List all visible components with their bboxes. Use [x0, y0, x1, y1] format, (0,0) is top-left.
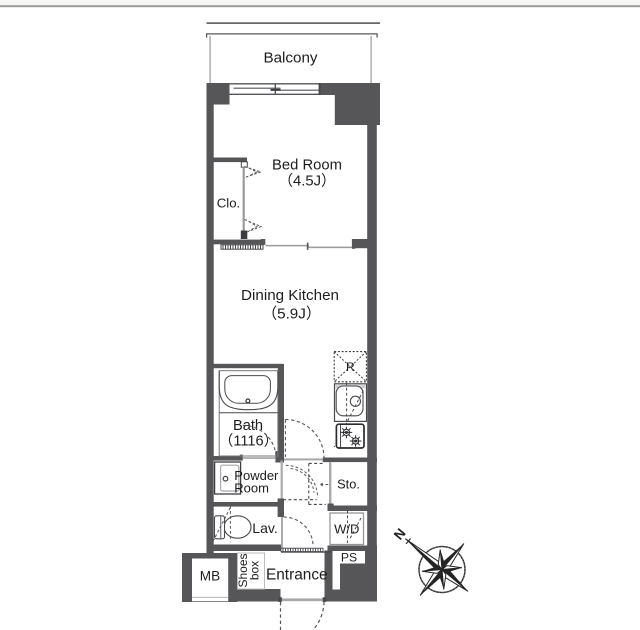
svg-text:Bath: Bath — [233, 418, 263, 434]
svg-text:Bed Room: Bed Room — [272, 158, 342, 174]
svg-text:（1116）: （1116） — [219, 433, 279, 450]
svg-text:MB: MB — [200, 569, 220, 584]
svg-text:W/D: W/D — [334, 522, 359, 537]
svg-text:R: R — [346, 360, 355, 374]
svg-text:PS: PS — [341, 551, 357, 565]
svg-text:Room: Room — [234, 481, 269, 496]
svg-text:box: box — [247, 561, 261, 580]
svg-text:Balcony: Balcony — [263, 50, 317, 67]
svg-text:Clo.: Clo. — [217, 196, 240, 211]
svg-text:（5.9J）: （5.9J） — [262, 306, 321, 323]
svg-text:Entrance: Entrance — [266, 567, 328, 584]
svg-text:Lav.: Lav. — [252, 520, 277, 536]
svg-text:Sto.: Sto. — [337, 477, 360, 492]
svg-text:（4.5J）: （4.5J） — [278, 173, 336, 190]
svg-text:Dining Kitchen: Dining Kitchen — [241, 287, 339, 304]
